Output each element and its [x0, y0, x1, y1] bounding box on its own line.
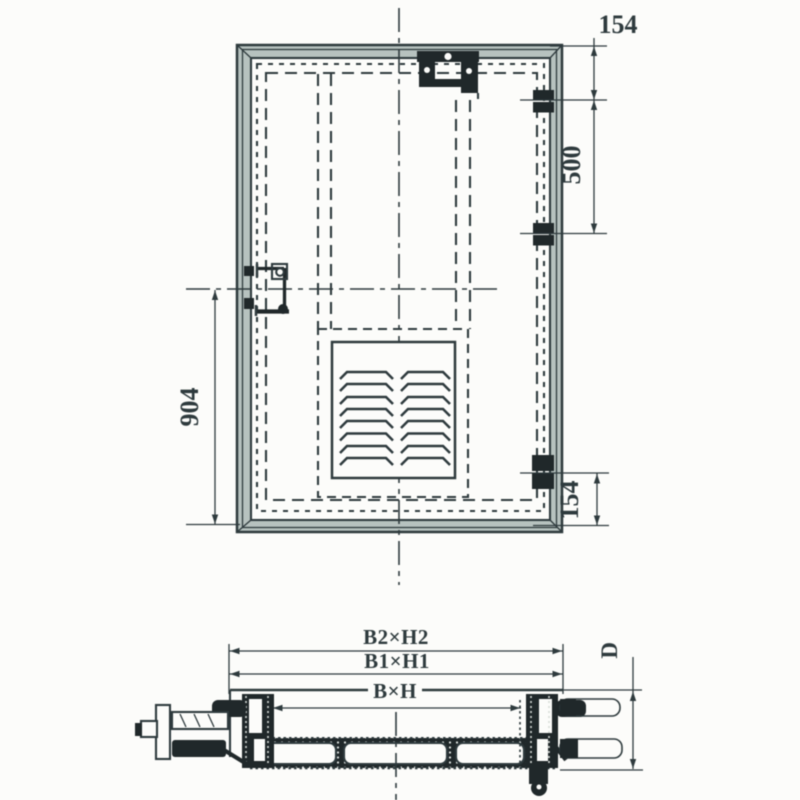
dim-depth: D: [597, 641, 636, 769]
leaf-panel: [456, 743, 524, 764]
door-leaf-section: [250, 738, 556, 768]
t-handle-shaft: [156, 705, 170, 759]
dim-label-904: 904: [175, 388, 204, 427]
dim-label-b2h2: B2×H2: [363, 625, 429, 649]
dim-label-154-bottom: 154: [555, 481, 584, 520]
dim-904: 904: [175, 290, 240, 525]
door-technical-drawing: 154 500 154 904: [0, 0, 800, 800]
drawing-sheet: 154 500 154 904: [0, 0, 800, 800]
dim-label-b1h1: B1×H1: [364, 649, 430, 673]
hinge-arms-section: [560, 699, 622, 758]
dim-b1h1: B1×H1: [229, 649, 563, 677]
dim-label-depth: D: [597, 641, 622, 658]
dim-label-500: 500: [557, 146, 586, 185]
louver-vent: [318, 329, 468, 497]
t-handle-grip: [141, 721, 157, 737]
dim-label-154-top: 154: [599, 10, 638, 39]
dim-label-bh: B×H: [373, 679, 417, 703]
front-view: 154 500 154 904: [175, 8, 638, 585]
section-view: B2×H2 B1×H1 B×H: [135, 625, 643, 800]
dim-bh: B×H: [272, 679, 521, 711]
